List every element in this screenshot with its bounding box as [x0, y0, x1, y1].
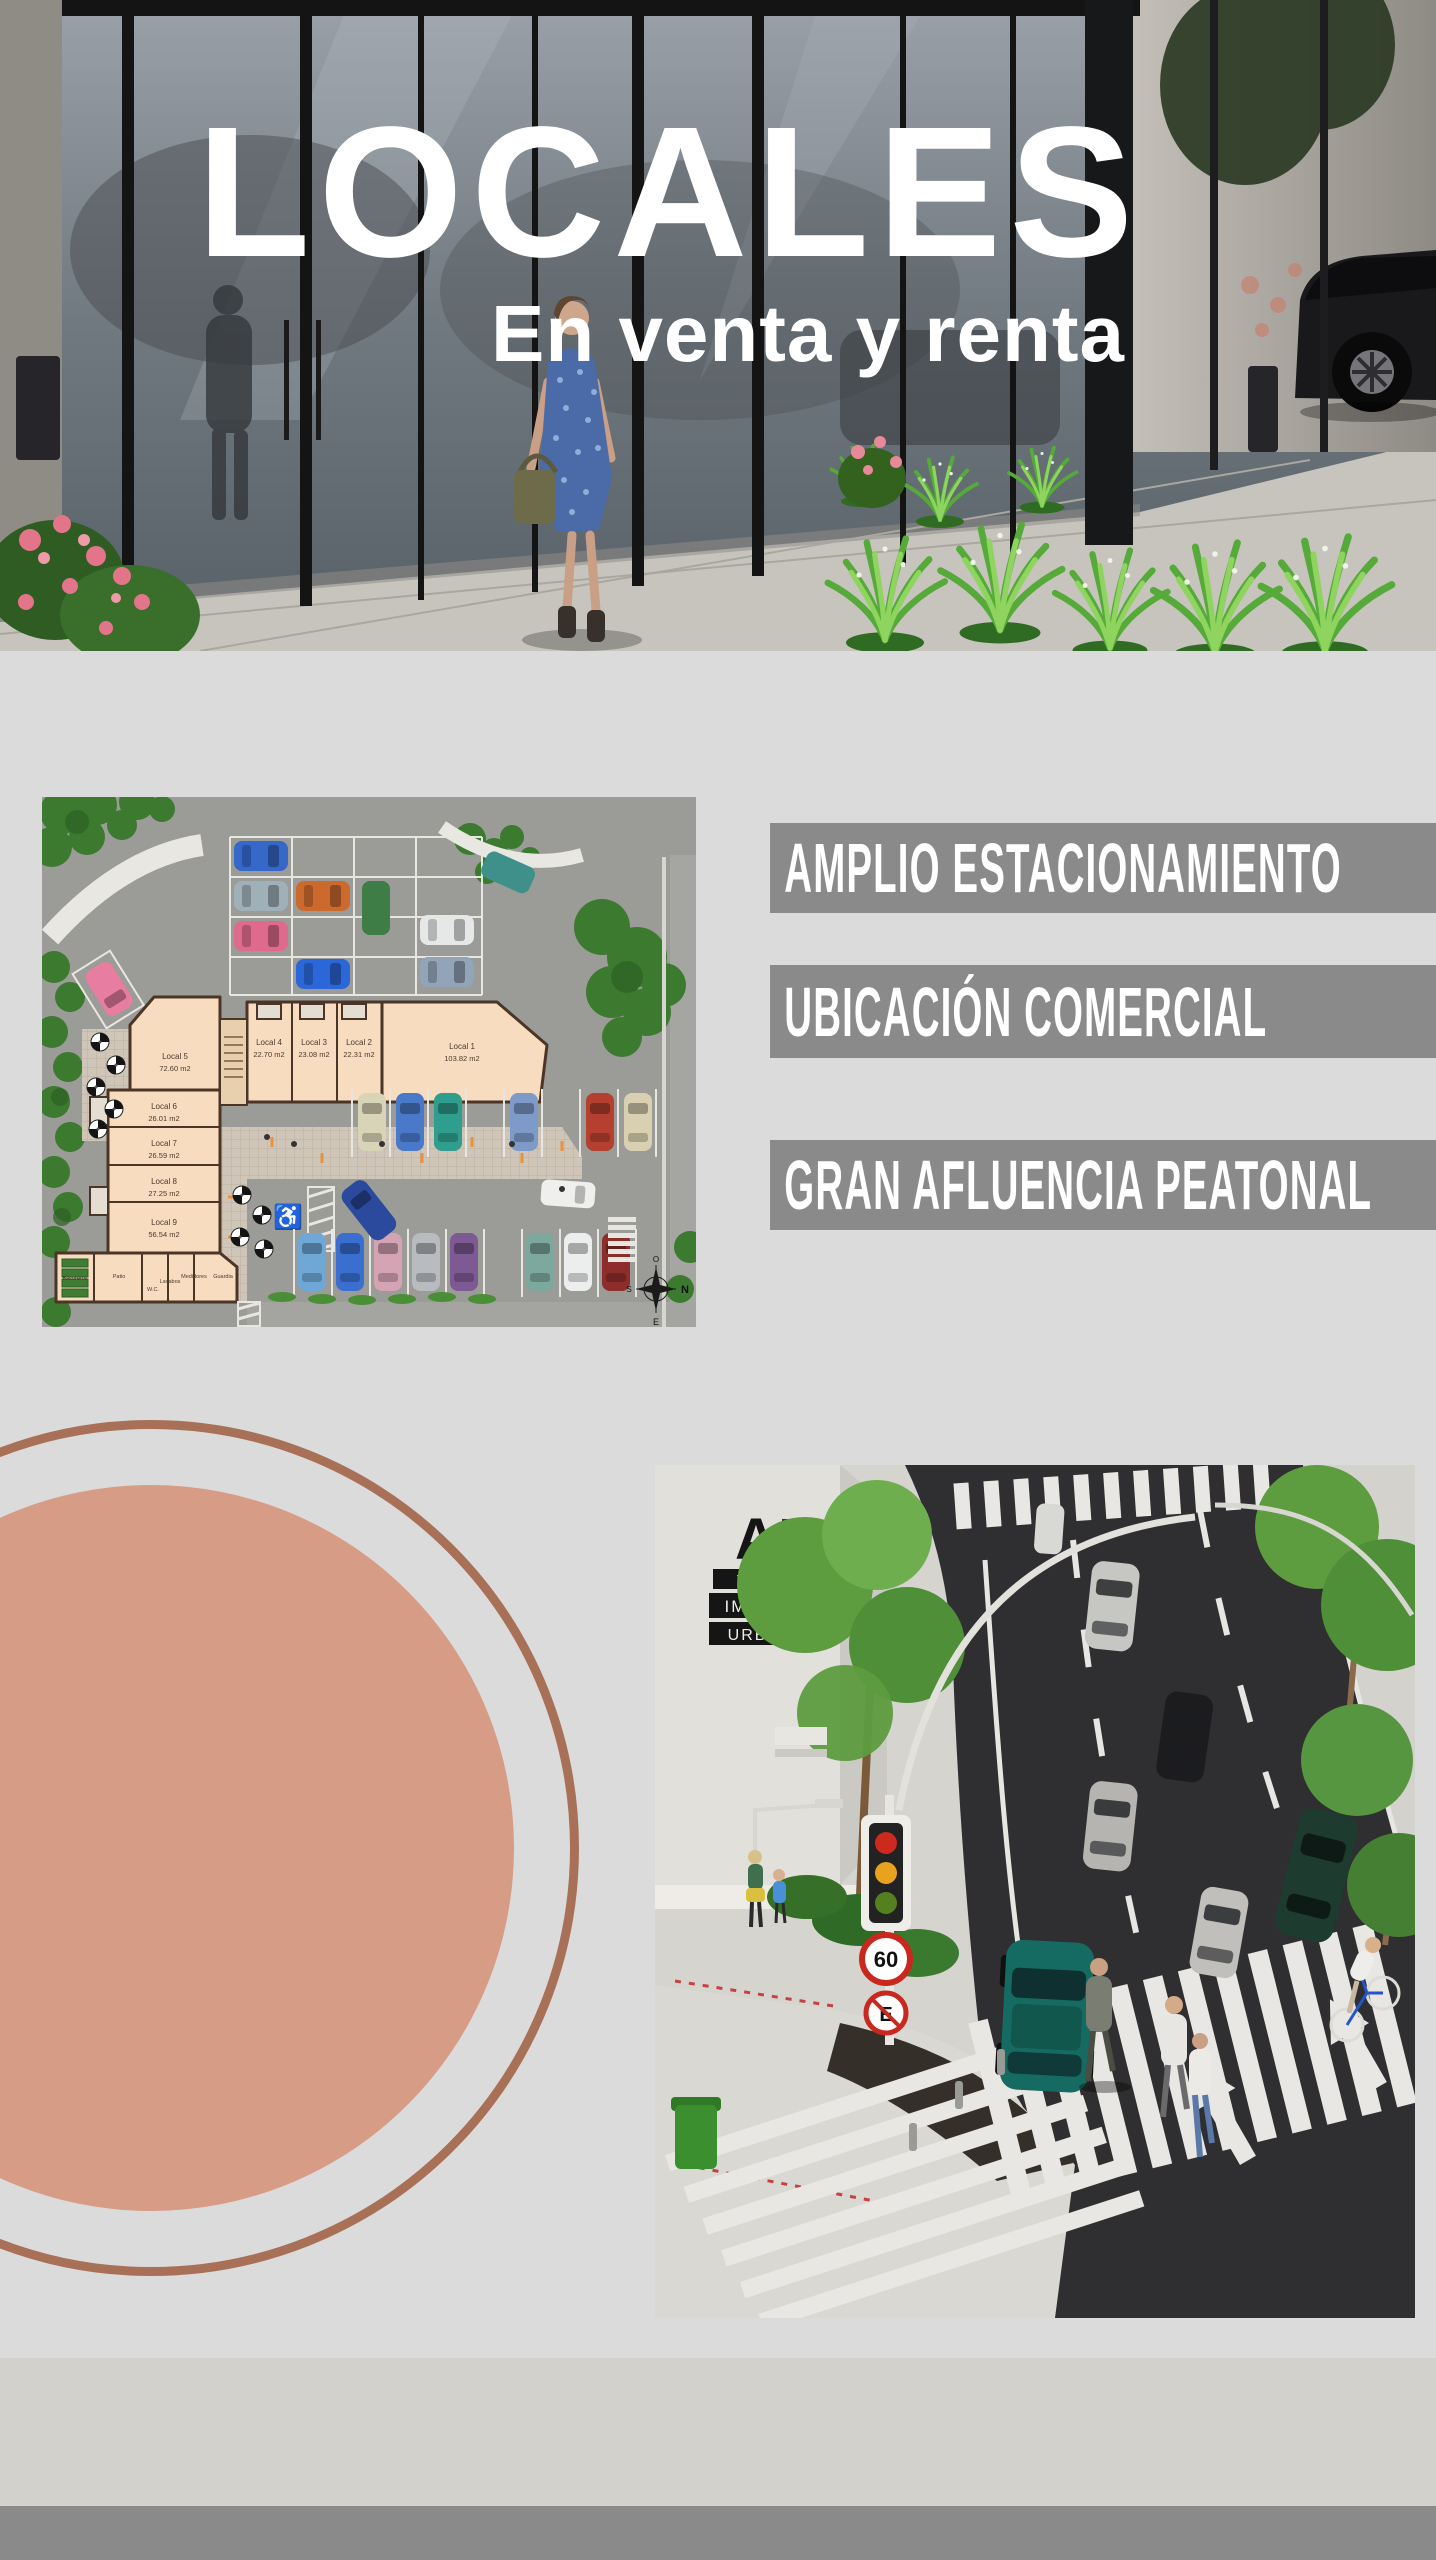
footer-bar — [0, 2506, 1436, 2560]
local-4-name: Local 4 — [256, 1038, 282, 1047]
footer-band — [0, 2358, 1436, 2506]
room-wc: W.C. — [147, 1287, 159, 1293]
car — [1084, 1560, 1141, 1653]
flyer-page: LOCALES En venta y renta — [0, 0, 1436, 2560]
car — [234, 841, 288, 871]
car — [296, 959, 350, 989]
hero-image: LOCALES En venta y renta — [0, 0, 1436, 651]
compass-n: N — [681, 1284, 689, 1296]
car — [420, 915, 474, 945]
no-parking-sign: E — [866, 1993, 906, 2033]
feature-banner-parking: AMPLIO ESTACIONAMIENTO — [770, 823, 1436, 913]
lot-row-lower — [294, 1229, 636, 1297]
car — [234, 881, 288, 911]
local-8-area: 27.25 m2 — [148, 1189, 179, 1198]
car — [564, 1233, 592, 1291]
site-plan-image: ♿ — [42, 797, 696, 1327]
feature-banner-location: UBICACIÓN COMERCIAL — [770, 965, 1436, 1058]
traffic-light-assembly: 60 E — [861, 1795, 911, 2045]
car — [450, 1233, 478, 1291]
car — [374, 1233, 402, 1291]
car — [362, 881, 390, 935]
avenue-render: A V VALLARTA IMAGEN URBANA — [655, 1465, 1415, 2318]
speed-limit-sign: 60 — [862, 1935, 910, 1983]
car — [396, 1093, 424, 1151]
local-7-name: Local 7 — [151, 1139, 177, 1148]
feature-banner-foot-traffic: GRAN AFLUENCIA PEATONAL — [770, 1140, 1436, 1230]
feature-label: GRAN AFLUENCIA PEATONAL — [770, 1145, 1372, 1225]
local-2-area: 22.31 m2 — [343, 1050, 374, 1059]
car — [1082, 1780, 1139, 1873]
wheelchair-icon: ♿ — [273, 1203, 303, 1231]
flyer-subtitle: En venta y renta — [138, 294, 1436, 374]
wall-sconce-icon — [16, 356, 60, 460]
room-basureros: Basureros — [62, 1276, 87, 1282]
car — [624, 1093, 652, 1151]
compass-e: E — [653, 1317, 659, 1327]
local-5-name: Local 5 — [162, 1052, 188, 1061]
room-medidores: Medidores — [181, 1274, 207, 1280]
car — [540, 1179, 596, 1209]
car — [434, 1093, 462, 1151]
local-6-area: 26.01 m2 — [148, 1114, 179, 1123]
feature-label: UBICACIÓN COMERCIAL — [770, 972, 1267, 1052]
car — [586, 1093, 614, 1151]
car — [296, 881, 350, 911]
car — [412, 1233, 440, 1291]
speed-limit-value: 60 — [874, 1947, 898, 1972]
compass-s: S — [626, 1285, 631, 1294]
local-7-area: 26.59 m2 — [148, 1151, 179, 1160]
local-9-area: 56.54 m2 — [148, 1230, 179, 1239]
local-2-name: Local 2 — [346, 1038, 372, 1047]
local-1-name: Local 1 — [449, 1042, 475, 1051]
room-guardia: Guardia — [213, 1274, 234, 1280]
flyer-title: LOCALES — [0, 100, 1338, 286]
local-1-area: 103.82 m2 — [444, 1054, 479, 1063]
local-3-area: 23.08 m2 — [298, 1050, 329, 1059]
feature-label: AMPLIO ESTACIONAMIENTO — [770, 828, 1342, 908]
car — [336, 1233, 364, 1291]
local-5-area: 72.60 m2 — [159, 1064, 190, 1073]
car — [420, 957, 474, 987]
car — [298, 1233, 326, 1291]
room-patio: Patio — [113, 1274, 126, 1280]
street-render-image: A V VALLARTA IMAGEN URBANA — [655, 1465, 1415, 2318]
lot-row-upper — [352, 1089, 656, 1157]
local-6-name: Local 6 — [151, 1102, 177, 1111]
car — [234, 921, 288, 951]
compass-o: O — [653, 1255, 659, 1264]
site-plan: ♿ — [42, 797, 696, 1327]
teal-car — [994, 1939, 1100, 2094]
local-4-area: 22.70 m2 — [253, 1050, 284, 1059]
local-9-name: Local 9 — [151, 1218, 177, 1227]
room-lavabos: Lavabos — [160, 1279, 181, 1285]
local-8-name: Local 8 — [151, 1177, 177, 1186]
local-3-name: Local 3 — [301, 1038, 327, 1047]
car — [1034, 1503, 1065, 1555]
wall-sconce-icon — [1248, 366, 1278, 452]
car — [526, 1233, 554, 1291]
